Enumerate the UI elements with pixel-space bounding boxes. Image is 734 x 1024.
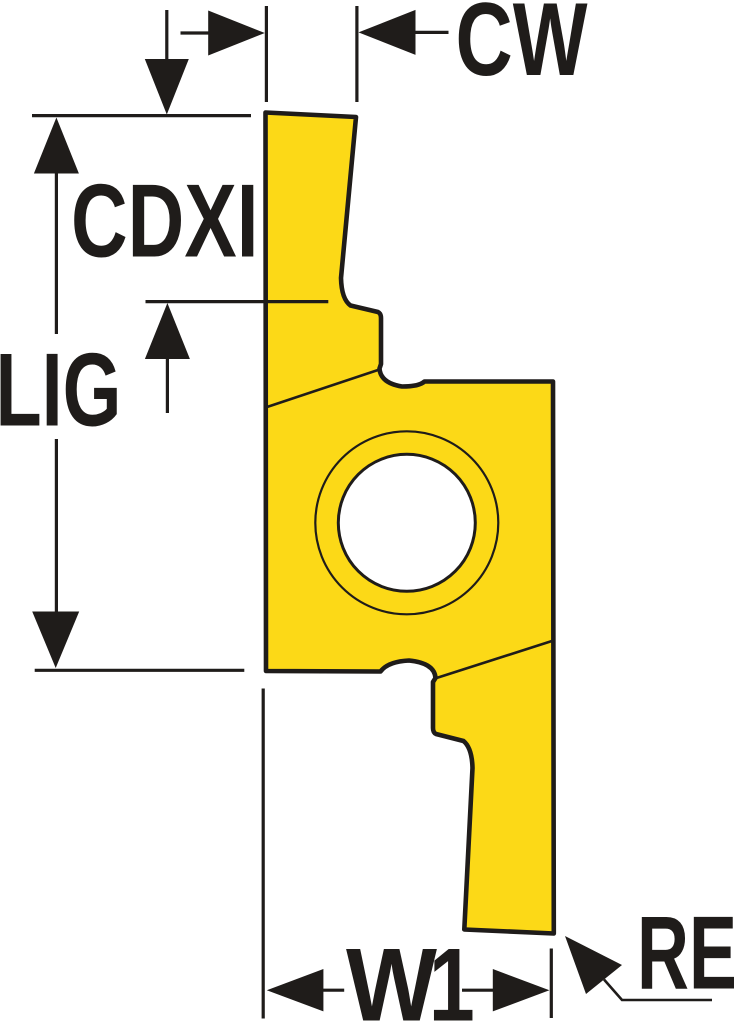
- svg-text:W: W: [346, 928, 438, 1024]
- svg-text:LIG: LIG: [0, 333, 122, 449]
- svg-text:CW: CW: [456, 0, 589, 98]
- svg-text:RE: RE: [637, 896, 734, 1012]
- svg-text:1: 1: [429, 928, 475, 1024]
- svg-text:CDXI: CDXI: [71, 164, 259, 280]
